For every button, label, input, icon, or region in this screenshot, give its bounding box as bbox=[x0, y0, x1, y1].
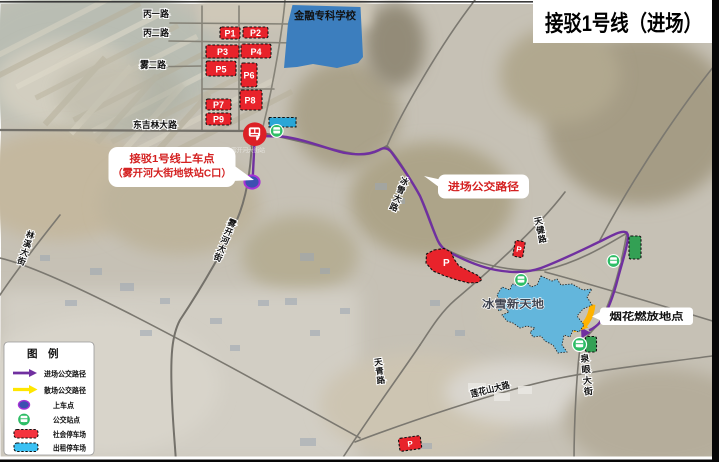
svg-text:P8: P8 bbox=[244, 96, 255, 106]
svg-text:散场公交路径: 散场公交路径 bbox=[44, 385, 86, 395]
svg-text:东吉林大路: 东吉林大路 bbox=[133, 119, 178, 130]
svg-text:P2: P2 bbox=[250, 28, 261, 38]
svg-text:丙一路: 丙一路 bbox=[143, 8, 170, 19]
svg-text:P6: P6 bbox=[243, 71, 254, 81]
svg-text:P1: P1 bbox=[224, 29, 235, 39]
svg-text:P: P bbox=[443, 258, 450, 269]
svg-text:雾开河大街站: 雾开河大街站 bbox=[231, 147, 265, 155]
svg-text:接驳1号线上车点: 接驳1号线上车点 bbox=[130, 152, 216, 165]
svg-text:雾二路: 雾二路 bbox=[139, 59, 167, 70]
svg-text:P3: P3 bbox=[217, 47, 228, 57]
svg-text:冰雪新天地: 冰雪新天地 bbox=[482, 297, 544, 311]
svg-text:P5: P5 bbox=[215, 65, 226, 75]
svg-text:进场公交路径: 进场公交路径 bbox=[448, 180, 520, 193]
svg-text:上车点: 上车点 bbox=[53, 400, 74, 410]
svg-text:社会停车场: 社会停车场 bbox=[52, 429, 86, 439]
svg-text:公交站点: 公交站点 bbox=[53, 415, 80, 425]
svg-text:P7: P7 bbox=[213, 100, 224, 110]
svg-text:丙二路: 丙二路 bbox=[143, 27, 170, 38]
svg-text:烟花燃放地点: 烟花燃放地点 bbox=[610, 310, 684, 323]
svg-text:金融专科学校: 金融专科学校 bbox=[293, 9, 356, 22]
svg-text:进场公交路径: 进场公交路径 bbox=[44, 369, 86, 379]
svg-text:P9: P9 bbox=[213, 115, 224, 125]
svg-text:接驳1号线（进场）: 接驳1号线（进场） bbox=[545, 11, 702, 36]
svg-text:P4: P4 bbox=[250, 47, 261, 57]
svg-text:（雾开河大街地铁站C口）: （雾开河大街地铁站C口） bbox=[113, 167, 232, 180]
svg-text:出租停车场: 出租停车场 bbox=[53, 443, 86, 453]
